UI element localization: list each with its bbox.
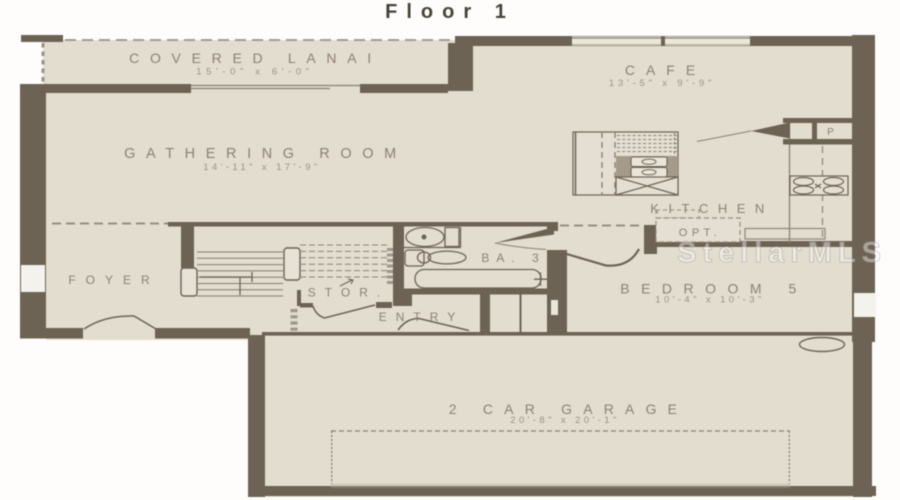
svg-text:ENTRY: ENTRY: [379, 310, 464, 324]
svg-text:P: P: [827, 127, 835, 138]
svg-text:COVERED LANAI: COVERED LANAI: [129, 50, 382, 66]
svg-text:BA. 3: BA. 3: [481, 251, 545, 265]
svg-text:Floor 1: Floor 1: [385, 1, 515, 23]
svg-text:14'-11" x 17'-9": 14'-11" x 17'-9": [203, 162, 320, 173]
svg-text:15'-0" x 6'-0": 15'-0" x 6'-0": [196, 67, 314, 78]
svg-text:CAFE: CAFE: [625, 62, 706, 78]
svg-text:10'-4" x 10'-3": 10'-4" x 10'-3": [655, 295, 764, 306]
svg-text:GATHERING ROOM: GATHERING ROOM: [124, 146, 407, 162]
svg-text:STOR.: STOR.: [308, 286, 389, 300]
svg-text:StellarMLS: StellarMLS: [677, 237, 887, 269]
svg-text:13'-5" x 9'-9": 13'-5" x 9'-9": [609, 78, 715, 89]
svg-text:KITCHEN: KITCHEN: [650, 201, 774, 216]
svg-text:20'-8" x 20'-1": 20'-8" x 20'-1": [510, 415, 619, 426]
svg-text:FOYER: FOYER: [68, 273, 159, 287]
